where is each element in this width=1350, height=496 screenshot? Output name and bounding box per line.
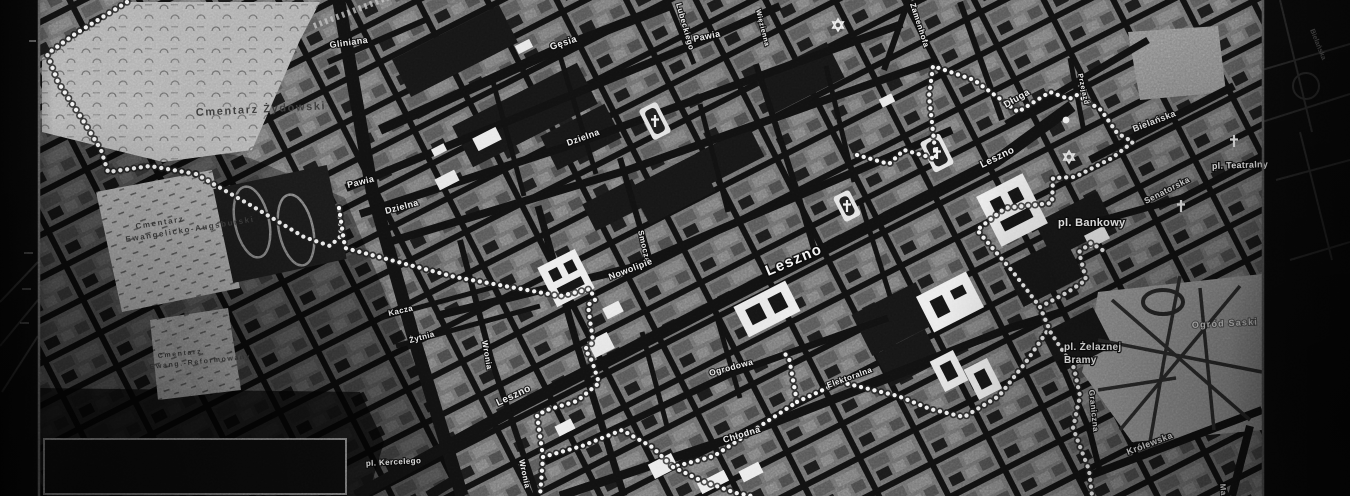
map-viewport[interactable]: Cmentarz ŻydowskiCmentarzEwangelicko-Aug… — [0, 0, 1350, 496]
film-grain-overlay — [0, 0, 1350, 496]
warsaw-ghetto-map: Cmentarz ŻydowskiCmentarzEwangelicko-Aug… — [0, 0, 1350, 496]
